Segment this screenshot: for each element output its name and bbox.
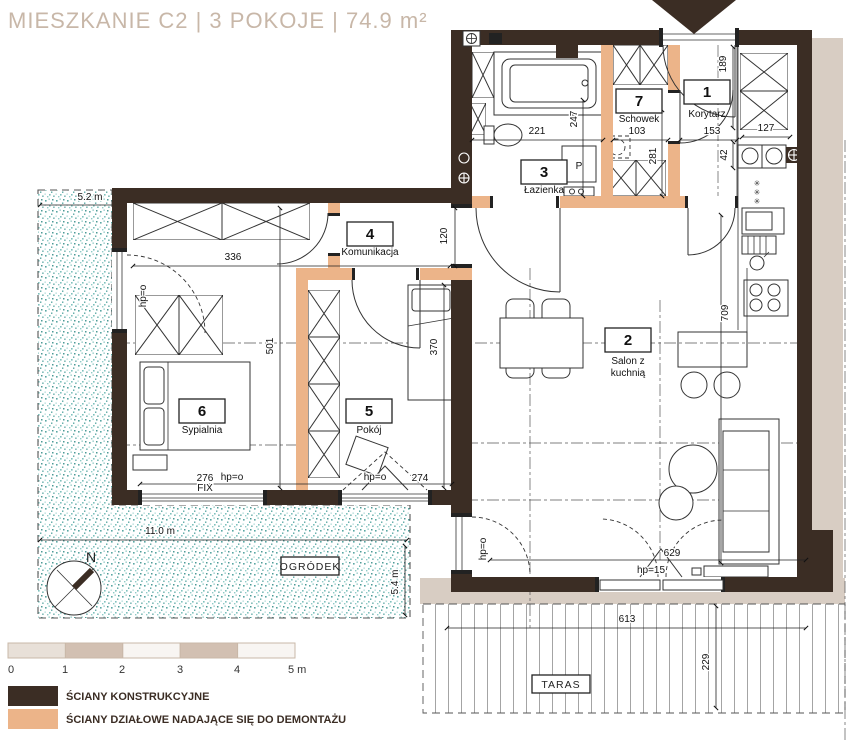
dim-501: 501 xyxy=(265,337,276,354)
stove-icon xyxy=(744,280,788,316)
coffee-table-icon xyxy=(659,486,693,520)
legend: ŚCIANY KONSTRUKCYJNE ŚCIANY DZIAŁOWE NAD… xyxy=(8,686,346,729)
svg-text:Salon z: Salon z xyxy=(611,356,644,367)
radiator-icon xyxy=(472,52,494,98)
dim-709: 709 xyxy=(720,304,731,321)
scale-tick: 0 xyxy=(8,664,14,676)
wardrobe-icon xyxy=(308,290,340,337)
garden-dim-top: 5.2 m xyxy=(77,192,102,203)
svg-text:4: 4 xyxy=(366,226,375,243)
dim-221: 221 xyxy=(529,126,546,137)
shaft-icon xyxy=(489,33,502,44)
room-label-lazienka: 3 Łazienka xyxy=(521,160,567,196)
room-label-korytarz: 1 Korytarz xyxy=(684,80,730,120)
storage-shelf-icon xyxy=(636,160,666,196)
legend-swatch-structural xyxy=(8,686,58,706)
svg-text:Korytarz: Korytarz xyxy=(688,109,725,120)
dishwasher-icon xyxy=(742,236,776,254)
dim-hp: hp=o xyxy=(221,472,244,483)
legend-label-partition: ŚCIANY DZIAŁOWE NADAJĄCE SIĘ DO DEMONTAŻ… xyxy=(66,713,346,726)
svg-text:5: 5 xyxy=(365,403,373,420)
dim-153: 153 xyxy=(704,126,721,137)
opening-komunikacja-salon xyxy=(451,204,472,268)
svg-text:6: 6 xyxy=(198,403,206,420)
dim-629: 629 xyxy=(664,548,681,559)
dim-120: 120 xyxy=(439,227,450,244)
sofa xyxy=(719,419,779,564)
kitchen-cabinet-icon xyxy=(740,53,788,91)
dim-274: 274 xyxy=(412,473,429,484)
scale-bar: 0 1 2 3 4 5 m xyxy=(8,643,306,676)
svg-text:Schowek: Schowek xyxy=(619,114,661,125)
freezer-star-icon: ✳ xyxy=(754,179,761,188)
svg-text:Łazienka: Łazienka xyxy=(524,185,564,196)
terrace-dim-depth: 229 xyxy=(701,653,712,670)
wardrobe-icon xyxy=(133,203,222,240)
storage-shelf-icon xyxy=(640,45,668,85)
floor-plan-page: MIESZKANIE C2 | 3 POKOJE | 74.9 m² 5.2 m… xyxy=(0,0,851,747)
dim-370: 370 xyxy=(429,338,440,355)
dim-hp: hp=o xyxy=(138,284,149,307)
svg-text:kuchnią: kuchnią xyxy=(611,368,646,379)
svg-text:1: 1 xyxy=(703,84,711,101)
wardrobe-icon xyxy=(308,337,340,384)
svg-text:Sypialnia: Sypialnia xyxy=(182,425,223,436)
compass-north-label: N xyxy=(86,549,96,565)
wardrobe-icon xyxy=(308,431,340,478)
toilet xyxy=(484,124,522,146)
freezer-star-icon: ✳ xyxy=(754,197,761,206)
storage-shelf-icon xyxy=(613,45,640,85)
svg-text:3: 3 xyxy=(540,164,548,181)
wardrobe-icon xyxy=(308,384,340,431)
scale-tick: 2 xyxy=(119,664,125,676)
wardrobe-icon xyxy=(222,203,310,240)
dim-336: 336 xyxy=(225,252,242,263)
page-title: MIESZKANIE C2 | 3 POKOJE | 74.9 m² xyxy=(8,8,428,33)
svg-text:Pokój: Pokój xyxy=(356,425,381,436)
garden-dim-bottom: 11.0 m xyxy=(145,526,175,537)
svg-text:7: 7 xyxy=(635,93,643,110)
dim-247: 247 xyxy=(569,110,580,127)
dim-fix: FIX xyxy=(197,483,213,494)
garden-dim-depth: 5.4 m xyxy=(390,569,401,594)
legend-swatch-partition xyxy=(8,709,58,729)
terrace-dim-width: 613 xyxy=(619,614,636,625)
scale-tick: 5 m xyxy=(288,664,306,676)
entrance-arrow-icon xyxy=(652,0,736,34)
legend-label-structural: ŚCIANY KONSTRUKCYJNE xyxy=(66,690,209,703)
bathtub xyxy=(494,52,604,115)
dim-hp: hp=o xyxy=(478,537,489,560)
scale-tick: 1 xyxy=(62,664,68,676)
svg-text:2: 2 xyxy=(624,332,632,349)
dim-127: 127 xyxy=(758,123,775,134)
dim-103: 103 xyxy=(629,126,646,137)
exterior-band-right xyxy=(812,38,843,604)
dim-281: 281 xyxy=(648,147,659,164)
terrace-label: TARAS xyxy=(541,679,580,691)
room-label-sypialnia: 6 Sypialnia xyxy=(179,399,225,436)
wardrobe-icon xyxy=(179,295,223,355)
room-label-komunikacja: 4 Komunikacja xyxy=(341,222,399,258)
freezer-star-icon: ✳ xyxy=(754,188,761,197)
dim-42: 42 xyxy=(719,149,730,161)
washing-machine-label: P xyxy=(576,161,583,172)
dim-hp: hp=o xyxy=(364,472,387,483)
dim-hp15: hp=15 xyxy=(637,565,666,576)
svg-text:Komunikacja: Komunikacja xyxy=(341,247,399,258)
scale-tick: 4 xyxy=(234,664,240,676)
room-label-schowek: 7 Schowek xyxy=(616,89,662,125)
bench xyxy=(133,455,167,470)
wall-symbol-icon xyxy=(459,173,469,183)
scale-tick: 3 xyxy=(177,664,183,676)
garden-label: OGRÓDEK xyxy=(280,560,341,573)
dim-189: 189 xyxy=(718,55,729,72)
